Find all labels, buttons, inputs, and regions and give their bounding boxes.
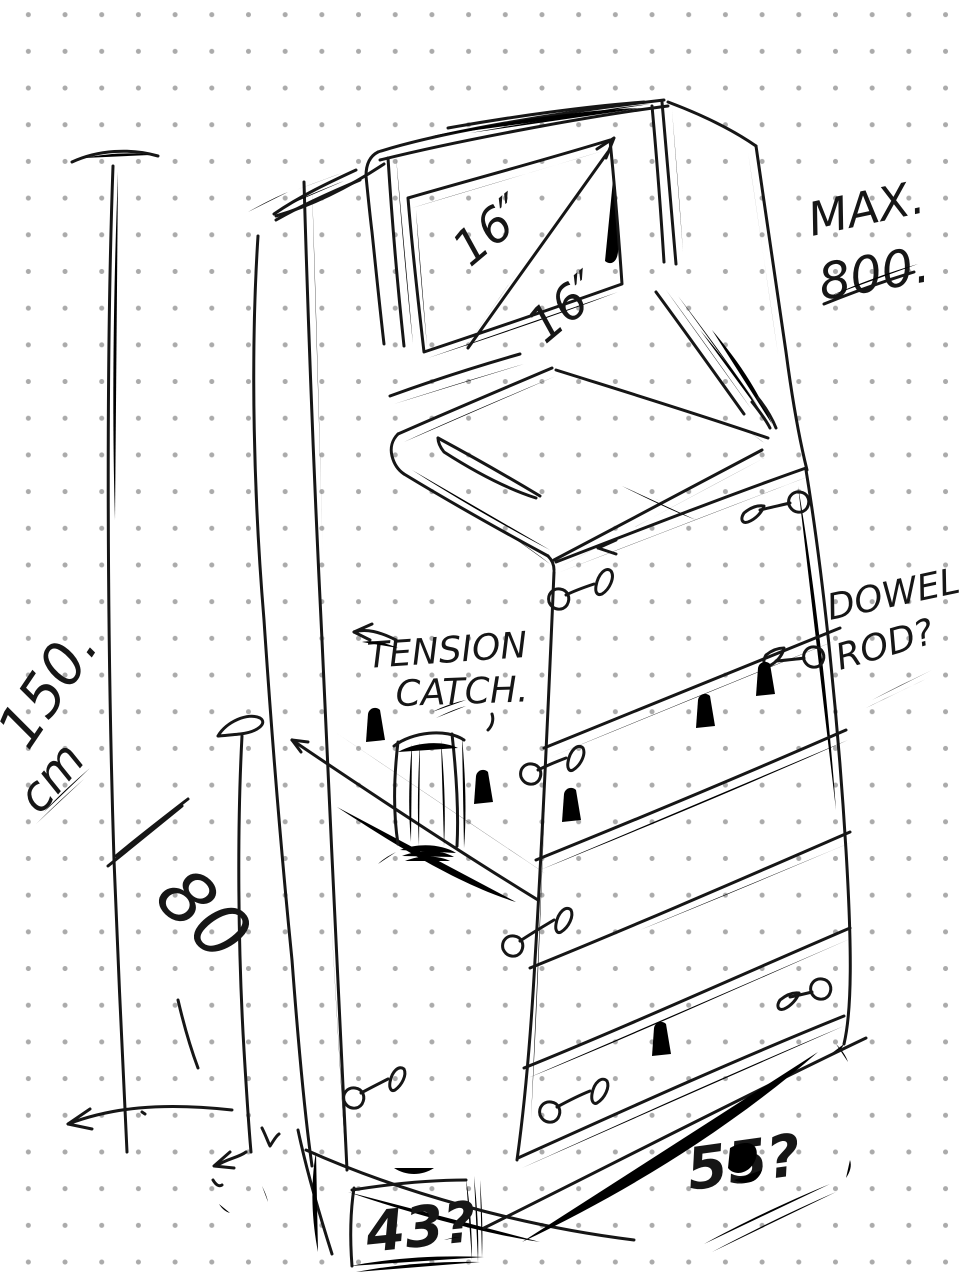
section-dimension-80: 80 — [139, 716, 279, 1186]
latch-label-line1: TENSION — [366, 625, 529, 677]
marquee-head: 16″ 16″ — [366, 100, 807, 470]
dot-grid-paper: 150. cm 80 — [0, 0, 960, 1280]
depth-dimension-note: 55? — [484, 1038, 866, 1252]
dowel-peg — [344, 1068, 405, 1108]
dowel-note-line1: DOWEL. — [823, 558, 960, 628]
screen-size-label-bottom: 16″ — [517, 260, 614, 354]
section-height-label: 80 — [139, 851, 266, 978]
dowel-peg — [737, 492, 809, 523]
dowel-pegs — [344, 492, 831, 1122]
height-dimension-150cm: 150. cm — [0, 151, 232, 1152]
dowel-peg — [549, 569, 613, 609]
cabinet-left-edge — [248, 164, 384, 1170]
screen-size-label-top: 16″ — [442, 183, 539, 277]
max-weight-line1: MAX. — [803, 170, 929, 247]
dowel-peg — [521, 746, 584, 784]
dowel-peg — [774, 979, 831, 1010]
latch-label-line2: CATCH. — [395, 669, 529, 715]
max-weight-note: MAX. 800. — [803, 170, 934, 312]
base-width-label: 43? — [362, 1190, 480, 1266]
dowel-rod-note: DOWEL. ROD? — [823, 558, 960, 708]
control-panel — [390, 354, 768, 570]
base-foot: 43? — [219, 1130, 634, 1272]
cabinet-sketch: 150. cm 80 — [0, 0, 960, 1280]
shelf-lines — [518, 628, 852, 1168]
dowel-peg — [540, 1079, 608, 1122]
height-arrow — [68, 1106, 232, 1124]
